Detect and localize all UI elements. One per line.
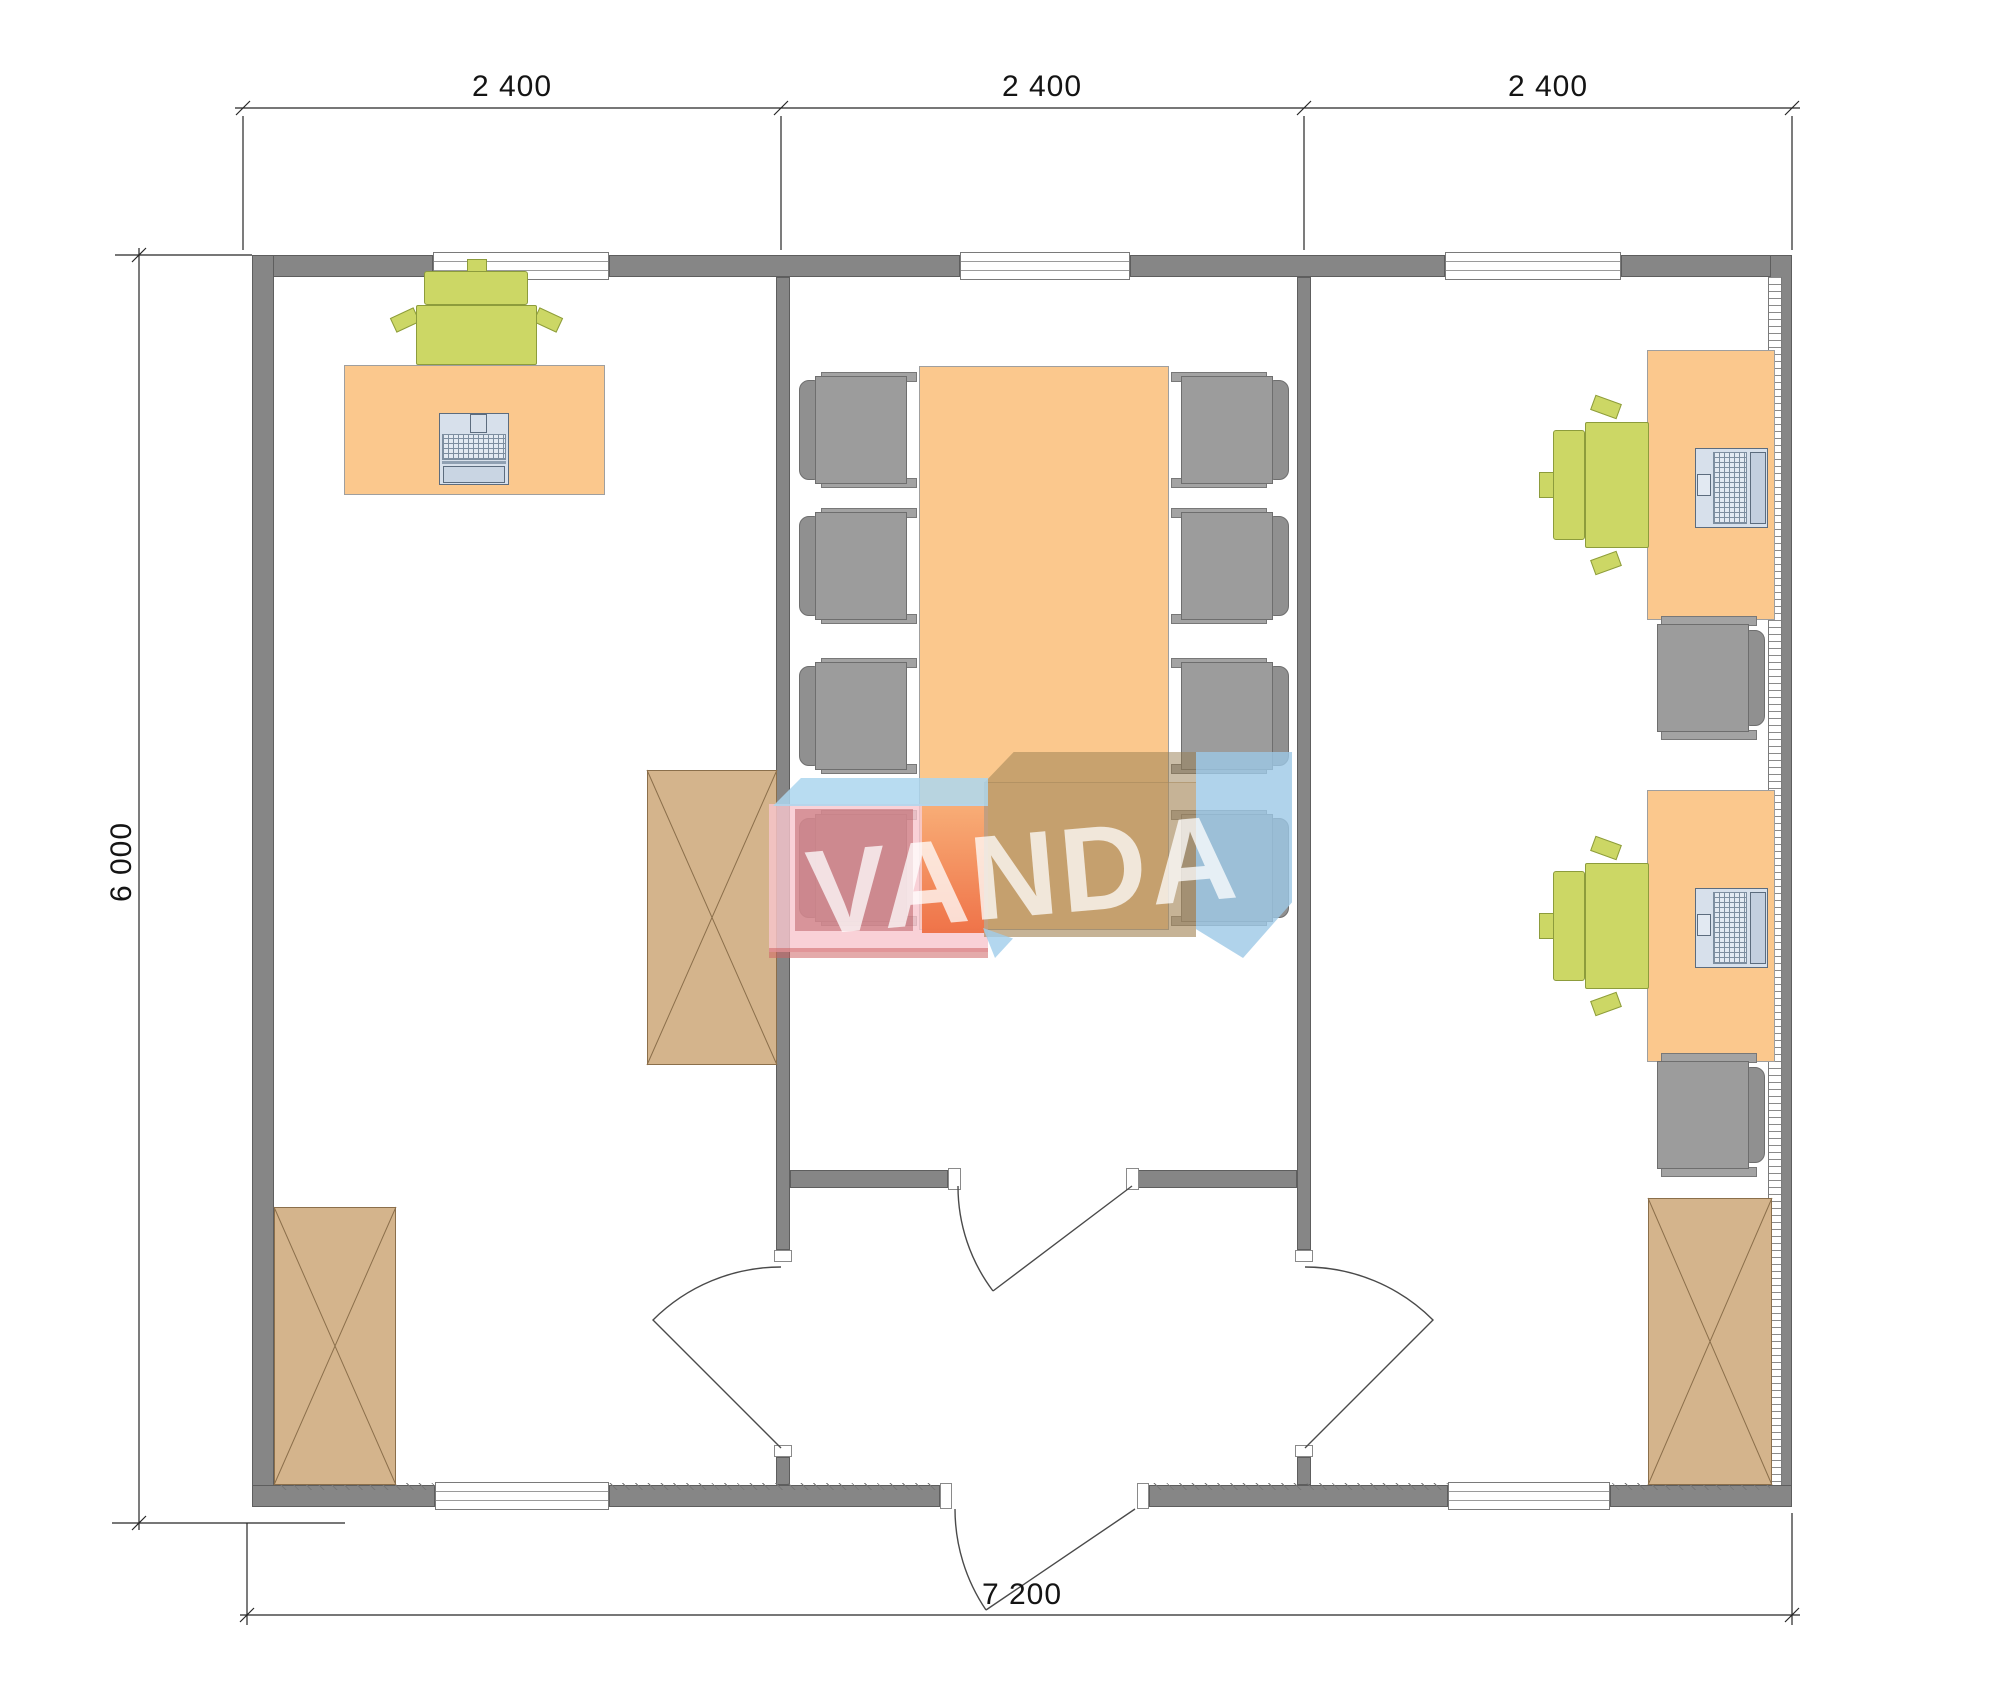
door-jamb <box>1137 1483 1149 1509</box>
wardrobe-cabinet <box>1648 1198 1772 1485</box>
office-chair-armrest <box>1590 992 1622 1017</box>
office-chair-seat <box>416 305 537 365</box>
laptop-screen <box>1750 452 1766 524</box>
window <box>1448 1482 1610 1510</box>
door-right-room <box>1305 1267 1433 1448</box>
top-wall-segment <box>252 255 433 277</box>
conference-chair-seat <box>815 662 907 770</box>
visitor-chair-back <box>1747 1067 1765 1163</box>
wardrobe-cabinet <box>647 770 777 1065</box>
dimension-label-left: 6 000 <box>105 762 139 962</box>
wardrobe-cabinet <box>274 1207 396 1485</box>
conference-chair-seat <box>1181 512 1273 620</box>
window <box>960 252 1130 280</box>
office-chair-armrest <box>533 307 563 332</box>
dimension-line-top <box>235 101 1800 250</box>
computer-bar <box>442 461 506 464</box>
door-jamb <box>1126 1168 1139 1190</box>
office-chair-seat <box>1585 863 1649 989</box>
top-wall-segment <box>609 255 960 277</box>
door-hall <box>958 1186 1132 1291</box>
top-wall-segment <box>1130 255 1445 277</box>
door-jamb <box>774 1445 792 1457</box>
conference-chair-back <box>1271 666 1289 766</box>
computer-keyboard <box>442 434 506 460</box>
office-chair-armrest <box>1590 551 1622 576</box>
visitor-chair-seat <box>1657 1061 1749 1169</box>
visitor-chair-back <box>1747 630 1765 726</box>
visitor-chair-seat <box>1657 624 1749 732</box>
door-jamb <box>1295 1445 1313 1457</box>
office-chair-seat <box>1585 422 1649 548</box>
partition-wall-right <box>1297 277 1311 1250</box>
conference-chair-seat <box>815 376 907 484</box>
conference-chair-seat <box>1181 376 1273 484</box>
window <box>435 1482 609 1510</box>
computer-cpu-box <box>470 414 487 433</box>
hall-wall-segment <box>1138 1170 1297 1188</box>
floor-plan-canvas: VANDA <box>0 0 2000 1704</box>
logo-tan-top <box>984 752 1196 783</box>
conference-chair-back <box>1271 516 1289 616</box>
laptop-keyboard <box>1713 892 1747 964</box>
laptop-screen <box>1750 892 1766 964</box>
office-chair-armrest <box>1590 395 1622 420</box>
hall-wall-segment <box>790 1170 948 1188</box>
dimension-label-top-3: 2 400 <box>1448 70 1648 104</box>
logo-blue-band <box>773 778 988 806</box>
partition-wall-left <box>776 277 790 1250</box>
dimension-label-top-2: 2 400 <box>942 70 1142 104</box>
door-jamb <box>1295 1250 1313 1262</box>
dimension-label-top-1: 2 400 <box>412 70 612 104</box>
office-chair-back <box>1553 871 1585 981</box>
conference-chair-seat <box>815 512 907 620</box>
office-chair-armrest <box>1590 836 1622 861</box>
laptop-keyboard <box>1713 452 1747 524</box>
conference-chair-back <box>1271 380 1289 480</box>
door-jamb <box>940 1483 952 1509</box>
partition-wall-left-stub <box>776 1457 790 1485</box>
top-wall-segment <box>1621 255 1792 277</box>
office-chair-back <box>1553 430 1585 540</box>
computer-tray <box>443 466 505 483</box>
door-left-room <box>653 1267 781 1448</box>
partition-wall-right-stub <box>1297 1457 1311 1485</box>
dimension-label-bottom: 7 200 <box>922 1578 1122 1612</box>
laptop-touchpad <box>1697 474 1711 496</box>
window <box>1445 252 1621 280</box>
door-jamb <box>948 1168 961 1190</box>
left-wall <box>252 255 274 1507</box>
door-jamb <box>774 1250 792 1262</box>
laptop-touchpad <box>1697 914 1711 936</box>
office-chair-back <box>424 271 528 305</box>
